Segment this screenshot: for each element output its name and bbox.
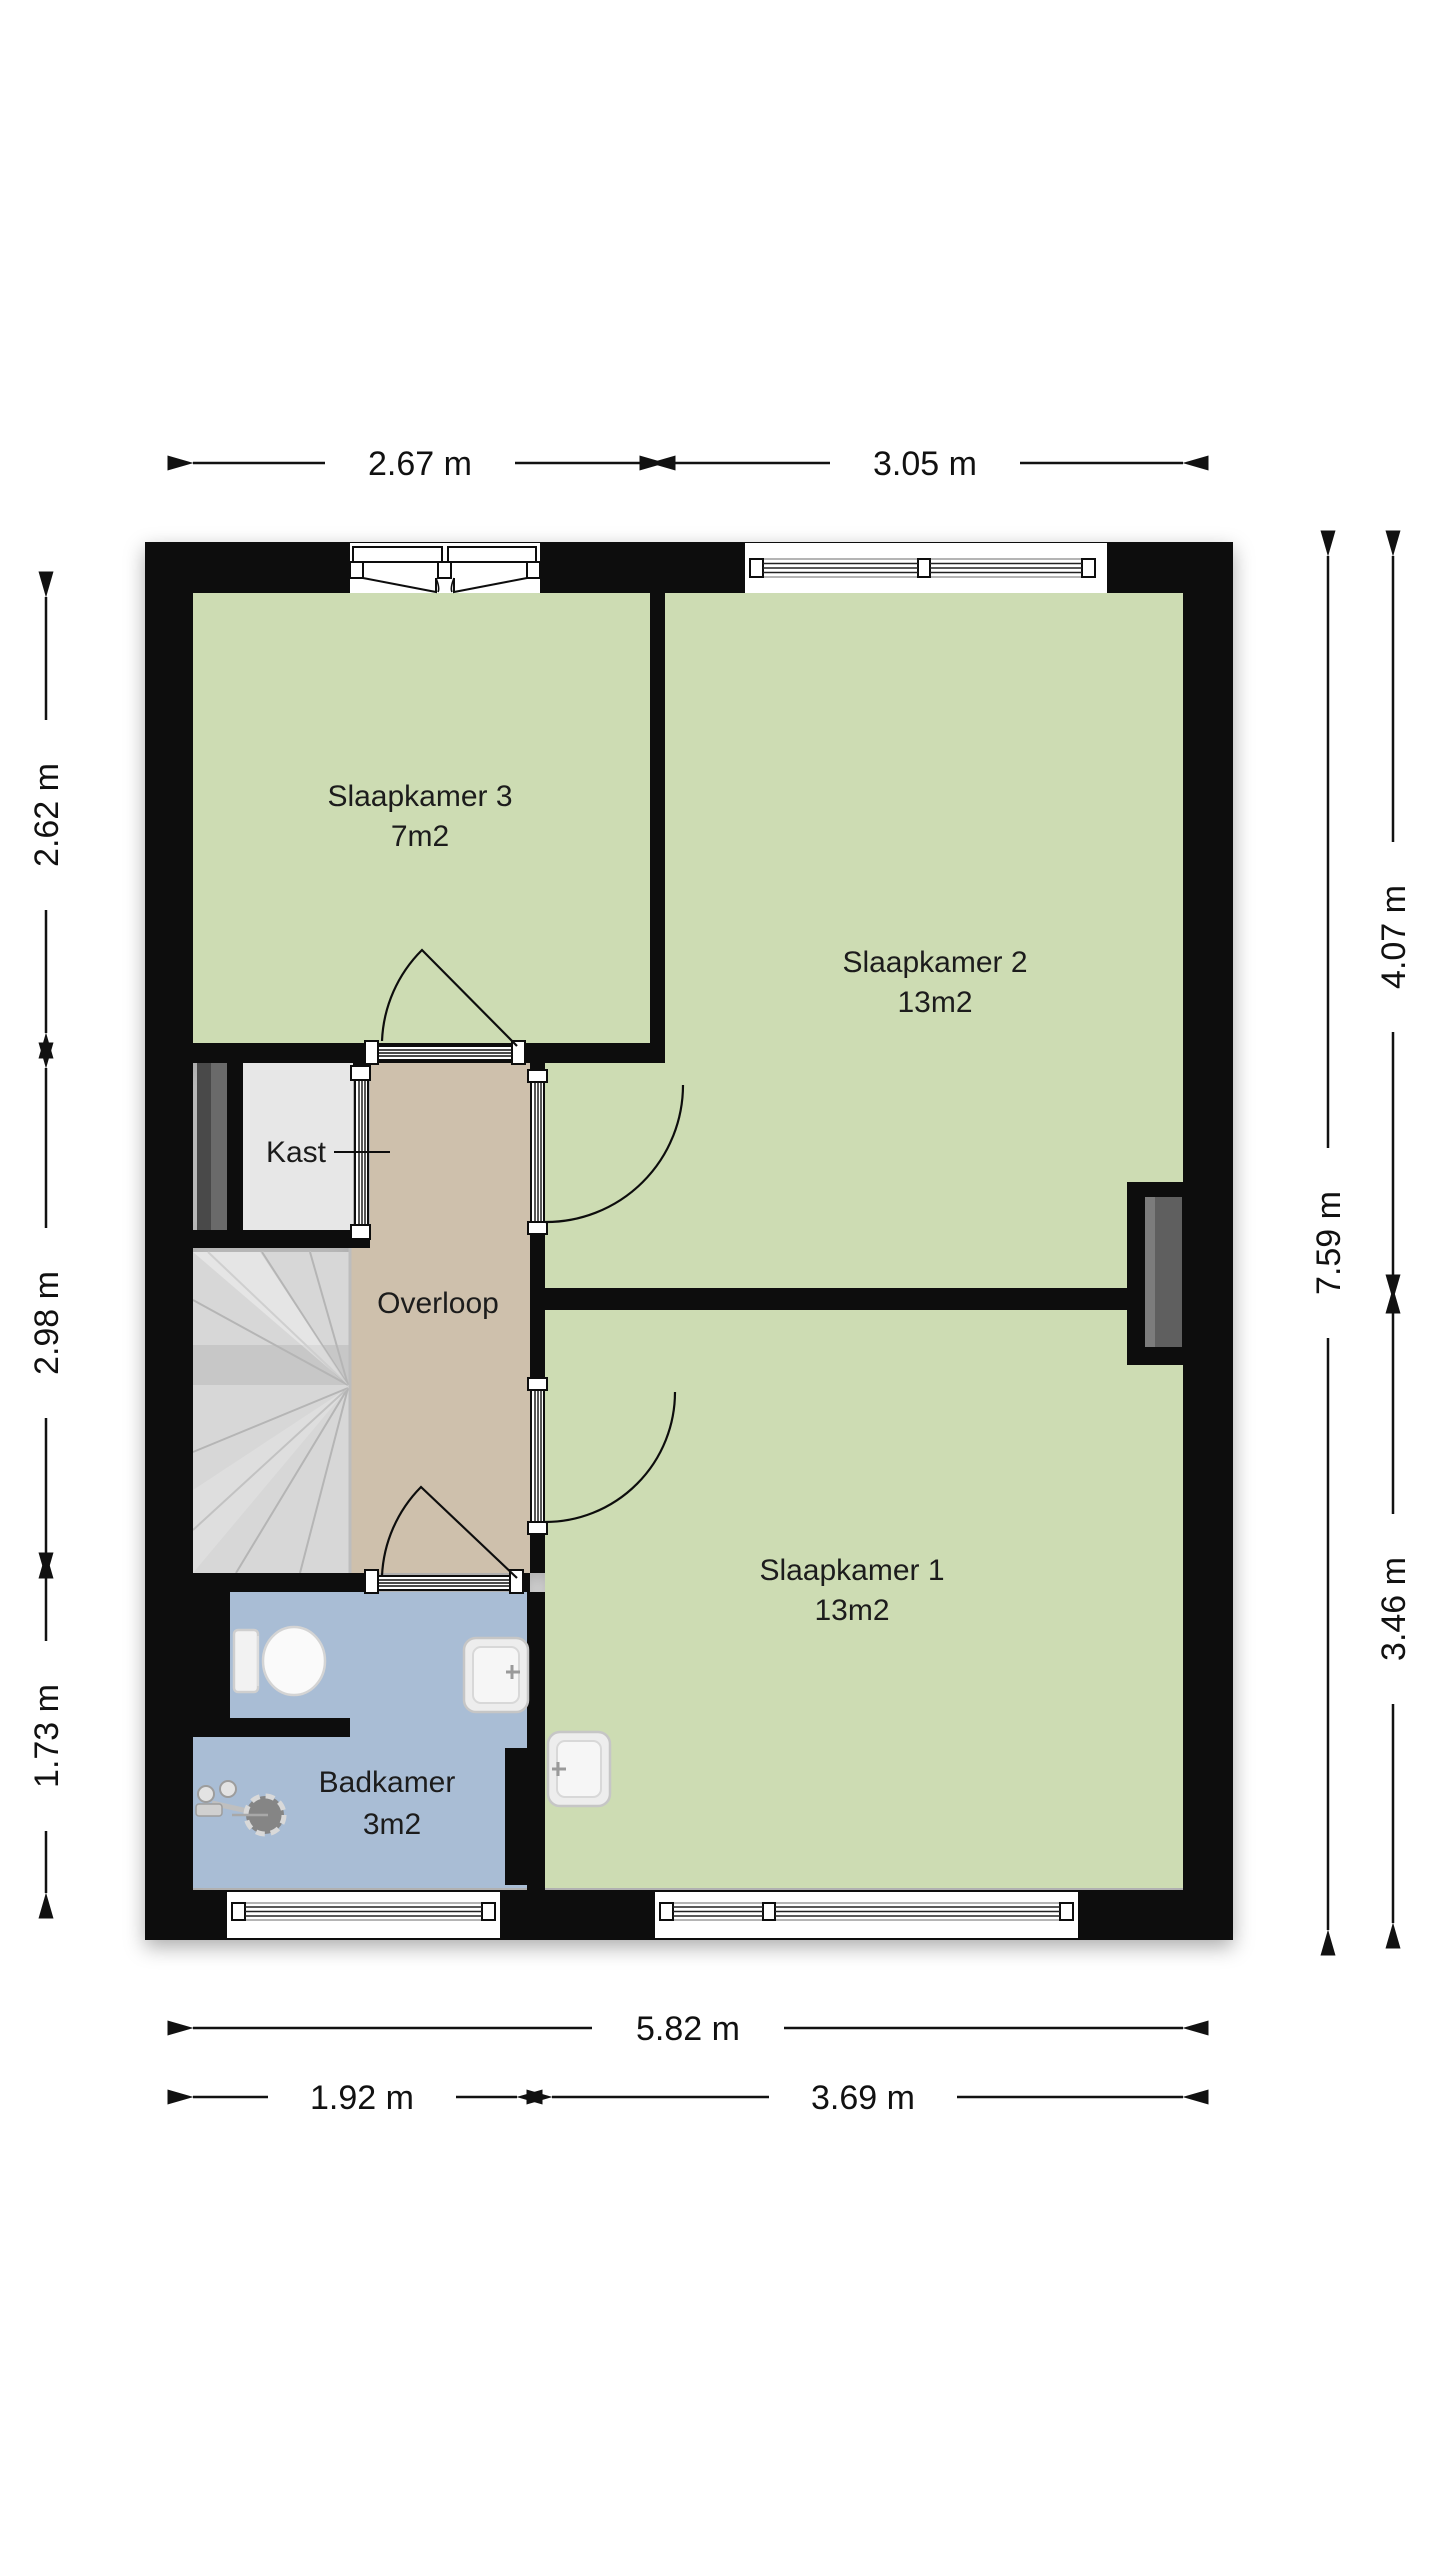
sink-badkamer xyxy=(464,1638,528,1712)
building: Slaapkamer 3 7m2 Slaapkamer 2 13m2 Slaap… xyxy=(145,542,1233,1940)
dim-left-3: 1.73 m xyxy=(28,1684,66,1788)
label-slaapkamer2: Slaapkamer 2 xyxy=(842,946,1027,979)
label-slaapkamer1: Slaapkamer 1 xyxy=(759,1554,944,1587)
label-kast: Kast xyxy=(266,1136,327,1169)
wall-toilet-stub xyxy=(193,1592,230,1718)
label-badkamer: Badkamer xyxy=(319,1766,456,1799)
dimension-top: 2.67 m 3.05 m xyxy=(193,438,1183,488)
staircase xyxy=(193,1248,350,1573)
label-slaapkamer3-area: 7m2 xyxy=(391,820,449,853)
dim-right-3: 3.46 m xyxy=(1375,1557,1413,1661)
dim-left-1: 2.62 m xyxy=(28,763,66,867)
dim-top-1: 2.67 m xyxy=(368,445,472,483)
dim-right-1: 4.07 m xyxy=(1375,885,1413,989)
window-slaapkamer1 xyxy=(655,1892,1078,1938)
label-badkamer-area: 3m2 xyxy=(363,1808,421,1841)
dim-left-2: 2.98 m xyxy=(28,1271,66,1375)
wall-badkamer-top-right xyxy=(523,1573,530,1592)
wall-badkamer-partition xyxy=(193,1718,350,1737)
dimension-bottom: 5.82 m 1.92 m 3.69 m xyxy=(193,2003,1183,2122)
label-slaapkamer2-area: 13m2 xyxy=(897,986,972,1019)
wall-overloop-right-c xyxy=(530,1534,545,1573)
wall-sk2-sk1 xyxy=(545,1288,1127,1310)
wall-badkamer-right xyxy=(527,1592,545,1890)
wall-badkamer-stub xyxy=(505,1748,527,1885)
dim-bottom-1: 5.82 m xyxy=(636,2010,740,2048)
dim-bottom-2: 1.92 m xyxy=(310,2079,414,2117)
shaft xyxy=(197,1063,227,1230)
wall-overloop-right-b xyxy=(530,1234,545,1378)
window-slaapkamer2 xyxy=(745,543,1107,593)
sink-slaapkamer1 xyxy=(548,1732,610,1806)
floorplan-canvas: Slaapkamer 3 7m2 Slaapkamer 2 13m2 Slaap… xyxy=(0,0,1440,2560)
dim-top-2: 3.05 m xyxy=(873,445,977,483)
room-floor-slaapkamer3 xyxy=(193,593,650,1043)
dimension-left: 2.62 m 2.98 m 1.73 m xyxy=(22,597,70,1893)
wall-kast-bottom xyxy=(193,1230,370,1248)
dim-bottom-3: 3.69 m xyxy=(811,2079,915,2117)
label-slaapkamer3: Slaapkamer 3 xyxy=(327,780,512,813)
label-overloop: Overloop xyxy=(377,1287,499,1320)
label-slaapkamer1-area: 13m2 xyxy=(814,1594,889,1627)
window-badkamer xyxy=(227,1892,500,1938)
window-slaapkamer3 xyxy=(350,543,540,593)
wall-kast-left xyxy=(227,1063,243,1230)
dimension-right: 4.07 m 7.59 m 3.46 m xyxy=(1304,556,1417,1930)
wall-badkamer-top-left xyxy=(193,1573,365,1592)
wall-sk3-sk2 xyxy=(650,593,665,1043)
recess-inset-highlight xyxy=(1145,1197,1155,1347)
toilet xyxy=(234,1627,325,1695)
dim-right-2: 7.59 m xyxy=(1310,1191,1348,1295)
